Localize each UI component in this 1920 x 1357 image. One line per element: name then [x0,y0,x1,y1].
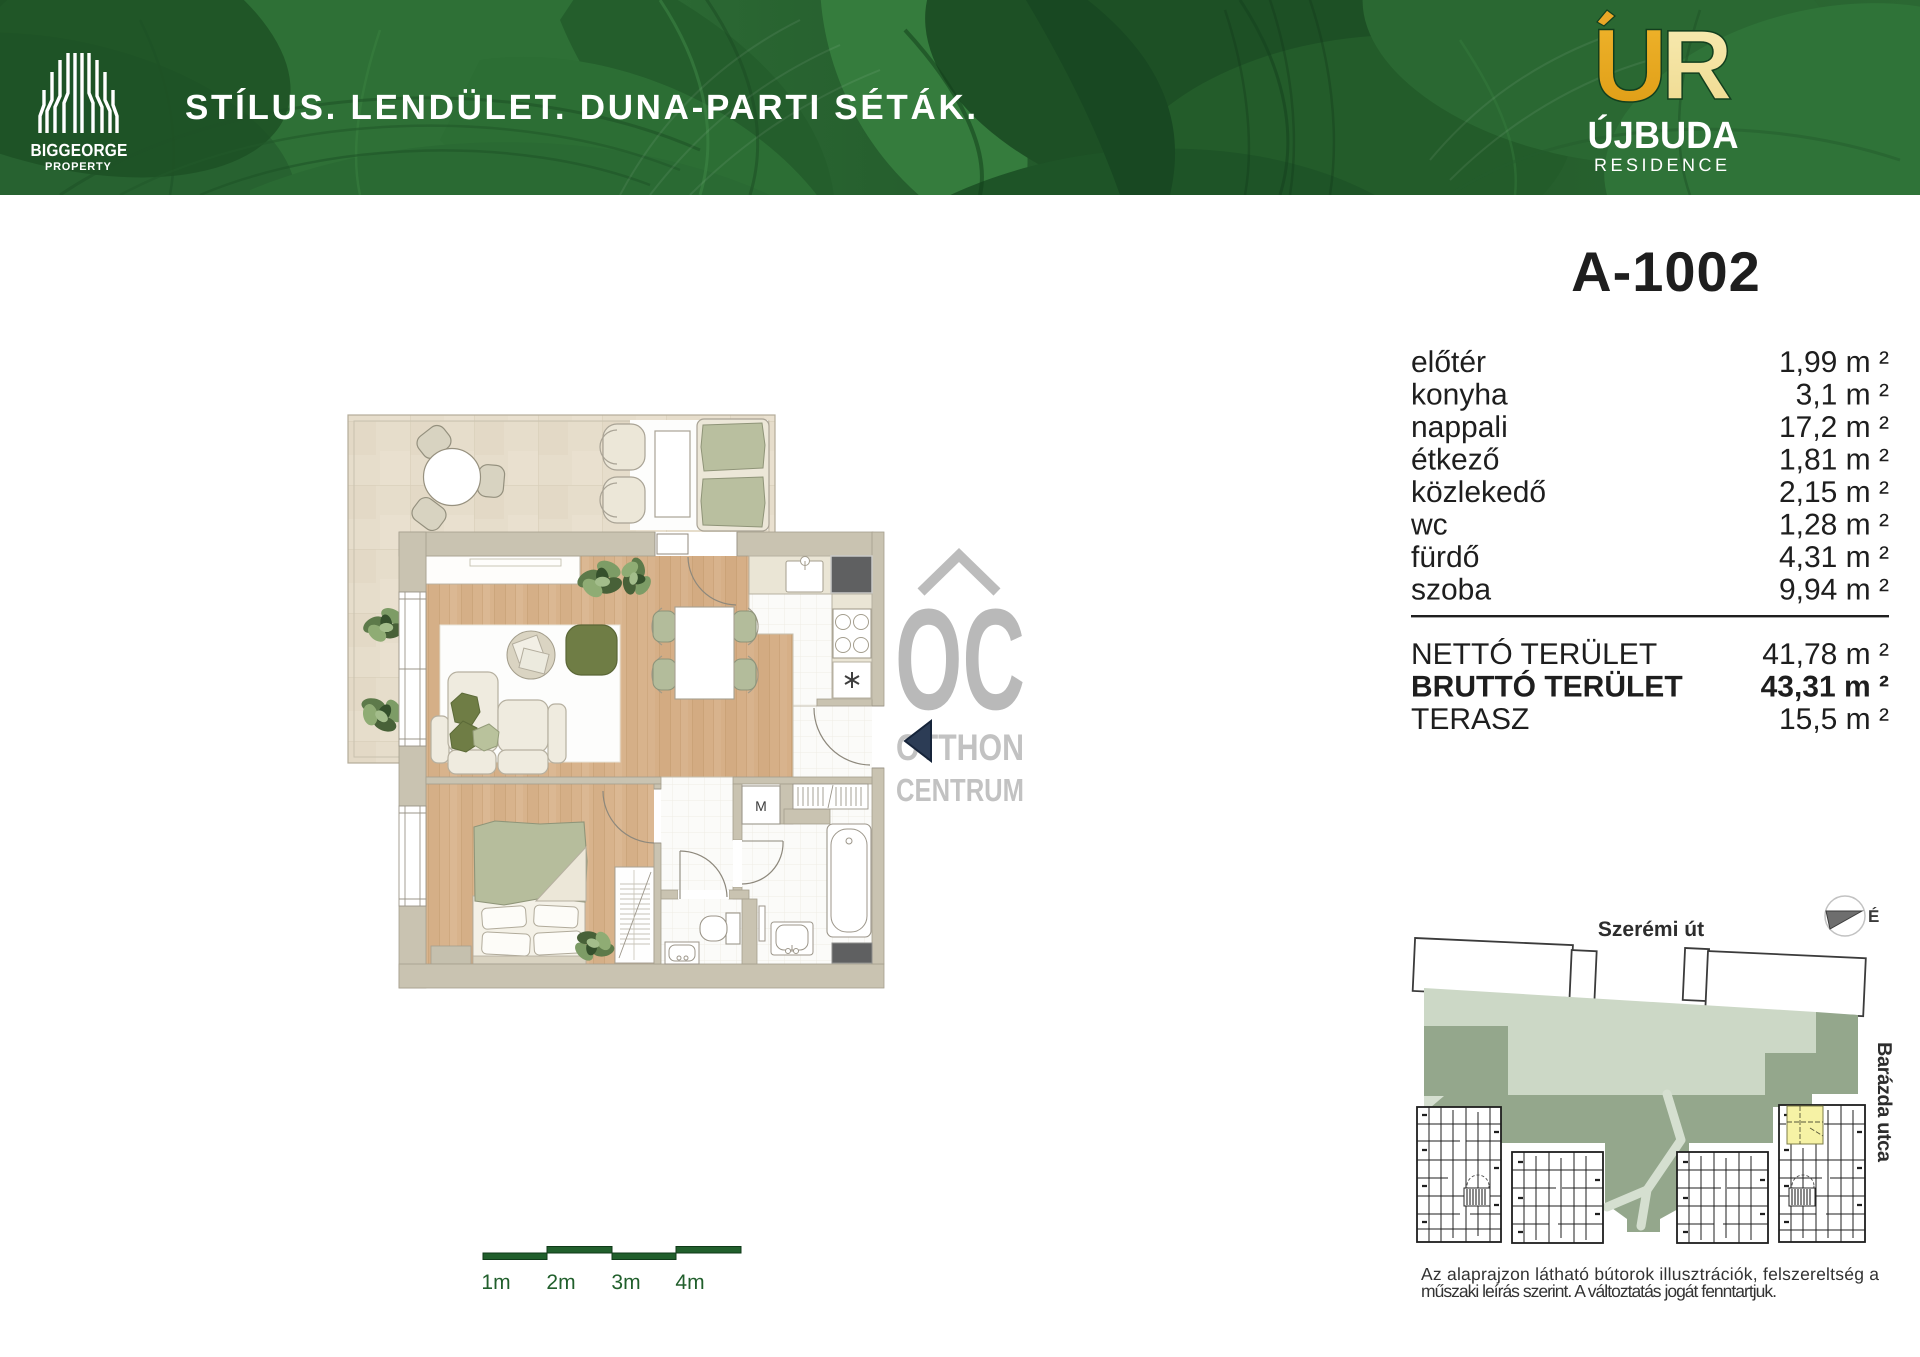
svg-text:M: M [755,798,767,814]
svg-text:fürdő: fürdő [1411,541,1479,574]
svg-text:43,31 m ²: 43,31 m ² [1761,671,1889,704]
svg-text:2m: 2m [546,1271,575,1294]
svg-text:A-1002: A-1002 [1571,240,1761,303]
svg-text:OC: OC [895,579,1025,740]
svg-text:BRUTTÓ TERÜLET: BRUTTÓ TERÜLET [1411,670,1683,704]
svg-text:nappali: nappali [1411,411,1508,444]
svg-text:15,5 m ²: 15,5 m ² [1779,703,1889,736]
svg-text:műszaki leírás szerint. A vál: műszaki leírás szerint. A változtatás jo… [1421,1281,1777,1301]
svg-text:17,2 m ²: 17,2 m ² [1779,411,1889,444]
svg-text:előtér: előtér [1411,346,1486,379]
svg-text:wc: wc [1410,509,1448,542]
svg-text:41,78 m ²: 41,78 m ² [1762,638,1889,671]
svg-text:R: R [1661,9,1733,120]
svg-text:3,1 m ²: 3,1 m ² [1796,379,1889,412]
svg-text:Barázda utca: Barázda utca [1873,1042,1895,1163]
svg-text:étkező: étkező [1411,444,1499,477]
svg-text:4,31 m ²: 4,31 m ² [1779,541,1889,574]
svg-text:CENTRUM: CENTRUM [896,772,1024,808]
svg-text:közlekedő: közlekedő [1411,476,1546,509]
svg-text:1,28 m ²: 1,28 m ² [1779,509,1889,542]
svg-text:ÚJBUDA: ÚJBUDA [1588,114,1739,157]
svg-text:1m: 1m [481,1271,510,1294]
svg-text:4m: 4m [675,1271,704,1294]
svg-text:3m: 3m [611,1271,640,1294]
svg-text:1,99 m ²: 1,99 m ² [1779,346,1889,379]
svg-text:Szerémi út: Szerémi út [1598,918,1704,941]
svg-text:NETTÓ TERÜLET: NETTÓ TERÜLET [1411,637,1657,671]
svg-text:PROPERTY: PROPERTY [45,161,113,173]
svg-text:RESIDENCE: RESIDENCE [1594,155,1732,175]
svg-text:9,94 m ²: 9,94 m ² [1779,574,1889,607]
svg-text:TERASZ: TERASZ [1411,703,1529,736]
svg-text:É: É [1868,906,1879,926]
svg-text:szoba: szoba [1411,574,1491,607]
svg-text:STÍLUS. LENDÜLET. DUNA-PARTI S: STÍLUS. LENDÜLET. DUNA-PARTI SÉTÁK. [185,87,979,127]
svg-text:2,15 m ²: 2,15 m ² [1779,476,1889,509]
svg-text:1,81 m ²: 1,81 m ² [1779,444,1889,477]
svg-text:BIGGEORGE: BIGGEORGE [31,140,128,160]
svg-text:konyha: konyha [1411,379,1508,412]
